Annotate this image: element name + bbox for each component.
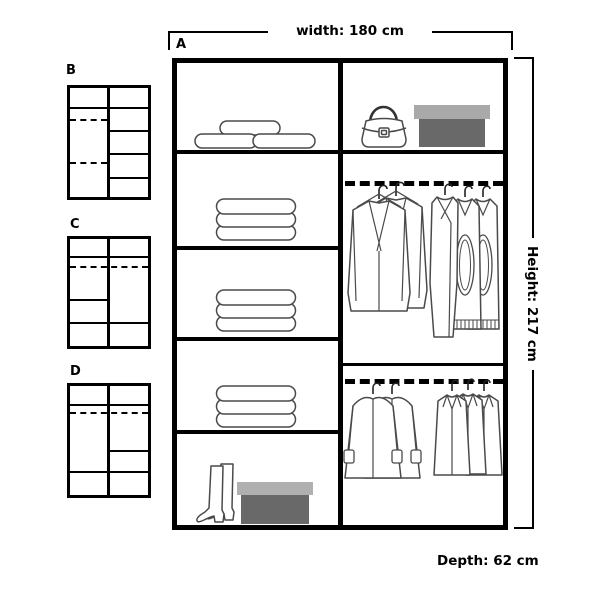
width-dimension-label: width: 180 cm <box>268 23 432 39</box>
height-dimension-label: Height: 217 cm <box>524 238 540 370</box>
wardrobe-layout-diagram: width: 180 cm Height: 217 cm Depth: 62 c… <box>0 0 600 600</box>
upper-hanging-group <box>343 153 503 363</box>
coats-icon <box>434 379 502 475</box>
layout-d-label: D <box>70 364 81 379</box>
layout-d-bottom-shelf <box>70 471 148 473</box>
shoe-box-icon <box>414 105 490 147</box>
fur-coats-icon <box>344 383 421 478</box>
width-dimension-right-tick <box>511 31 513 50</box>
layout-b-right-shelf-1 <box>110 130 148 132</box>
layout-a-label: A <box>176 37 186 52</box>
jackets-icon <box>348 182 427 311</box>
height-dimension-bottom-tick <box>514 527 534 529</box>
layout-b-divider <box>107 88 110 197</box>
boots-and-box-group <box>177 434 338 525</box>
shoe-box-icon <box>237 482 313 524</box>
sweaters-icon <box>430 184 499 337</box>
lower-hanging-group <box>343 363 503 528</box>
folded-towels-icon <box>215 288 297 334</box>
depth-dimension-label: Depth: 62 cm <box>437 553 539 569</box>
layout-b-top-shelf <box>70 107 148 109</box>
layout-d-right-shelf <box>110 450 148 452</box>
width-dimension-left-tick <box>168 31 170 50</box>
layout-c-bottom-shelf <box>70 322 148 324</box>
boots-icon <box>197 464 234 522</box>
handbag-and-box-group <box>343 63 503 150</box>
layout-b-rail-2 <box>70 162 107 164</box>
layout-c-left-shelf <box>70 299 107 301</box>
layout-d-top-shelf <box>70 404 148 406</box>
layout-d-divider <box>107 386 110 495</box>
main-left-shelf-line-3 <box>177 337 338 341</box>
folded-towels-icon <box>215 384 297 430</box>
layout-c-rail <box>70 266 148 268</box>
main-left-shelf-line-2 <box>177 246 338 250</box>
layout-b-right-shelf-3 <box>110 177 148 179</box>
layout-c-top-shelf <box>70 256 148 258</box>
pillows-icon <box>177 63 338 150</box>
folded-towels-icon <box>215 197 297 243</box>
layout-b-right-shelf-2 <box>110 153 148 155</box>
layout-d-rail <box>70 412 148 414</box>
layout-c-label: C <box>70 217 80 232</box>
height-dimension-top-tick <box>514 57 534 59</box>
handbag-body <box>362 119 406 148</box>
layout-b-label: B <box>66 63 76 78</box>
layout-b-rail-1 <box>70 119 107 121</box>
